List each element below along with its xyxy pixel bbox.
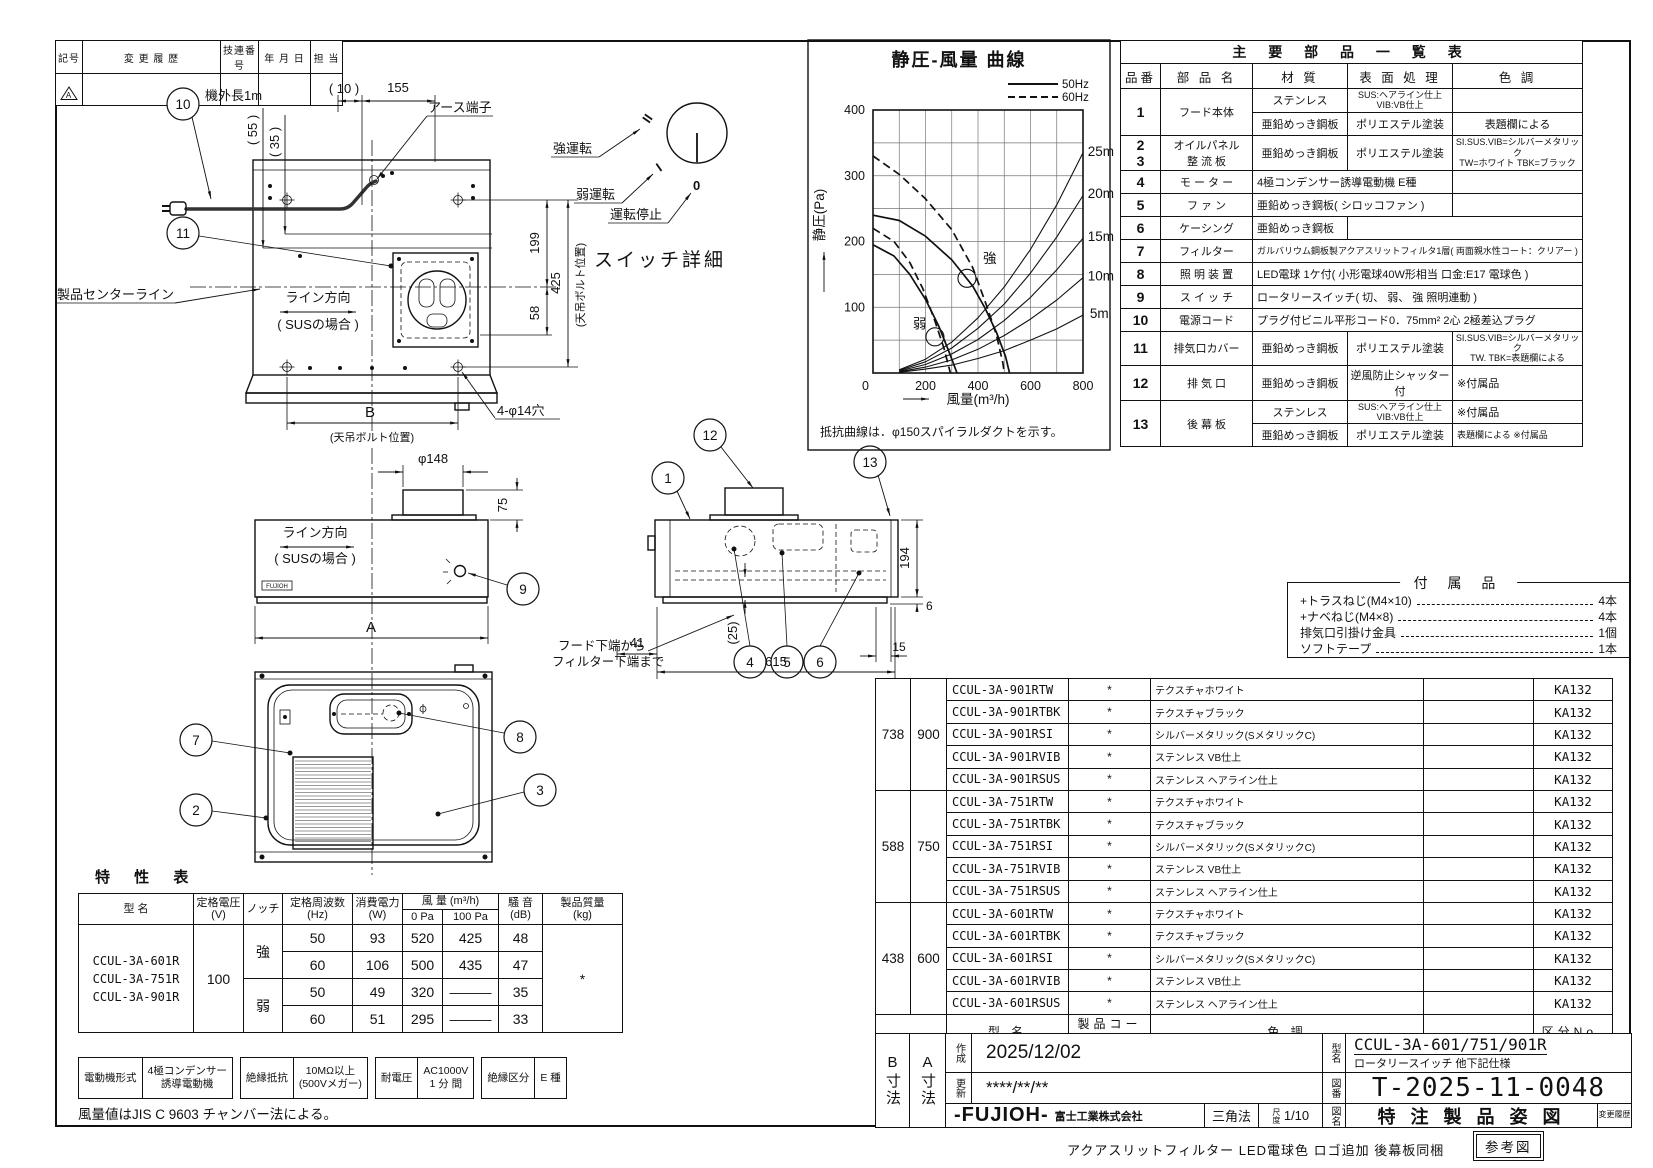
parts-table: 主 要 部 品 一 覧 表品番部 品 名材 質表 面 処 理色 調1フード本体ス… [1120, 40, 1583, 447]
motor-spec-cell: 電動機形式4極コンデンサー 誘導電動機 [78, 1057, 233, 1099]
cord-length-label: 機外長1m [205, 88, 262, 103]
color-tone: テクスチャホワイト [1151, 790, 1424, 812]
char-table-cell: 0 Pa [403, 909, 443, 925]
parts-table-cell: プラグ付ビニル平形コード0．75mm² 2心 2極差込プラグ [1253, 308, 1583, 331]
chart-ylabel: 静圧(Pa) [812, 189, 827, 242]
model-table-cell [1424, 746, 1534, 768]
kubun-no: KA132 [1534, 835, 1613, 857]
parts-table-cell: ポリエステル塗装 [1348, 424, 1453, 447]
characteristics-table: 型 名定格電圧 (V)ノッチ定格周波数 (Hz)消費電力 (W)風 量 (m³/… [78, 893, 623, 1033]
char-table-cell: 295 [403, 1006, 443, 1033]
strong-run-label: 強運転 [553, 141, 592, 156]
char-table-cell: 320 [403, 979, 443, 1006]
model-name: CCUL-3A-901RTW [947, 679, 1069, 701]
motor-spec-row: 電動機形式4極コンデンサー 誘導電動機絶縁抵抗10MΩ以上 (500Vメガー)耐… [78, 1057, 574, 1099]
parts-table-cell: 照 明 装 置 [1161, 262, 1253, 285]
y-tick: 300 [844, 169, 865, 183]
parts-table-cell: ステンレス [1253, 89, 1348, 113]
char-table-cell: 425 [443, 925, 499, 952]
chart-curve [899, 196, 1083, 371]
dim-label: A [366, 619, 376, 636]
model-cell: CCUL-3A-601/751/901R ロータリースイッチ 他下記仕様 [1345, 1033, 1632, 1073]
b-dimension: 588 [876, 790, 911, 902]
legend-60hz: 60Hz [1062, 92, 1089, 104]
parts-table-cell: ステンレス [1253, 400, 1348, 424]
chart-annotation: 25m [1088, 144, 1114, 159]
parts-table-cell: ケーシング [1161, 216, 1253, 239]
color-tone: テクスチャブラック [1151, 813, 1424, 835]
dim-label: 199 [527, 232, 542, 254]
airflow-note: 風量値はJIS C 9603 チャンバー法による。 [78, 1103, 337, 1123]
product-code: * [1069, 992, 1151, 1014]
kubun-no: KA132 [1534, 746, 1613, 768]
parts-table-cell: 電源コード [1161, 308, 1253, 331]
motor-spec-cell: 絶縁区分E 種 [481, 1057, 566, 1099]
parts-table-cell [1453, 193, 1583, 216]
parts-table-cell: 9 [1121, 285, 1161, 308]
model-table-cell [1424, 902, 1534, 924]
kubun-no: KA132 [1534, 723, 1613, 745]
balloon-8: 8 [516, 730, 524, 745]
rev-mini-cell: 変更履歴 [1597, 1103, 1632, 1128]
sus-note: ( SUSの場合 ) [274, 551, 356, 566]
parts-table-cell: 亜鉛めっき鋼板 [1253, 365, 1348, 400]
line-direction-label: ライン方向 [282, 525, 347, 540]
product-code: * [1069, 925, 1151, 947]
parts-table-cell: 13 [1121, 400, 1161, 447]
x-tick: 0 [862, 379, 869, 393]
company-logo-cell: -FUJIOH- 富士工業株式会社 [945, 1103, 1205, 1128]
char-table-cell: 48 [499, 925, 543, 952]
parts-table-cell: 4極コンデンサー誘導電動機 E種 [1253, 170, 1453, 193]
balloon-1: 1 [664, 471, 672, 486]
model-name: CCUL-3A-751RSUS [947, 880, 1069, 902]
parts-table-cell: オイルパネル 整 流 板 [1161, 135, 1253, 170]
dim-label: 75 [495, 498, 510, 512]
accessory-item: ソフトテープ1本 [1300, 641, 1617, 657]
char-table-cell: * [543, 925, 623, 1033]
legend-50hz: 50Hz [1062, 79, 1089, 91]
parts-table-cell: SI.SUS.VIB=シルバーメタリック TW=ホワイト TBK=ブラック [1453, 135, 1583, 170]
parts-table-cell: ポリエステル塗装 [1348, 331, 1453, 365]
parts-table-cell: 排 気 口 [1161, 365, 1253, 400]
parts-table-cell: フィルター [1161, 239, 1253, 262]
switch-mark-stop: 0 [693, 178, 700, 193]
parts-table-cell: 亜鉛めっき鋼板 [1253, 216, 1348, 239]
model-table-cell [1424, 947, 1534, 969]
model-label: 型名 [1322, 1033, 1346, 1073]
chart-annotation: 強 [983, 251, 997, 266]
product-code: * [1069, 858, 1151, 880]
model-table-cell [1424, 858, 1534, 880]
weak-run-label: 弱運転 [576, 187, 615, 202]
x-tick: 600 [1020, 379, 1041, 393]
char-table-cell: 50 [283, 925, 353, 952]
dim-label: (天吊ボルト位置) [330, 430, 414, 444]
char-table-cell: 製品質量 (kg) [543, 894, 623, 925]
char-table-cell: 定格電圧 (V) [194, 894, 244, 925]
kubun-no: KA132 [1534, 701, 1613, 723]
parts-table-cell: ロータリースイッチ( 切、 弱、 強 照明連動 ) [1253, 285, 1583, 308]
side-view-drawing: 12 1 13 4 5 6 41 615 (25) [552, 419, 933, 679]
char-table-cell: 強 [244, 925, 283, 979]
chart-curve [899, 278, 1083, 372]
duct-dia-label: φ148 [418, 451, 448, 466]
parts-table-cell [1348, 216, 1583, 239]
switch-mark-weak: I [653, 160, 665, 174]
x-tick: 200 [915, 379, 936, 393]
kubun-no: KA132 [1534, 813, 1613, 835]
model-table-cell [1424, 835, 1534, 857]
parts-table-cell: 亜鉛めっき鋼板 [1253, 331, 1348, 365]
parts-table-cell: ス イ ッ チ [1161, 285, 1253, 308]
model-name: CCUL-3A-601RSI [947, 947, 1069, 969]
line-direction-label: ライン方向 [285, 290, 350, 305]
product-code: * [1069, 701, 1151, 723]
dim-label: 15 [892, 640, 906, 654]
model-name: CCUL-3A-601RVIB [947, 970, 1069, 992]
created-date: 2025/12/02 [971, 1033, 1323, 1073]
parts-table-cell: 亜鉛めっき鋼板 [1253, 135, 1348, 170]
company-name: 富士工業株式会社 [1055, 1108, 1143, 1124]
motor-spec-cell: 絶縁抵抗10MΩ以上 (500Vメガー) [240, 1057, 368, 1099]
color-tone: ステンレス ヘアライン仕上 [1151, 880, 1424, 902]
char-table-cell: 435 [443, 952, 499, 979]
char-table-cell: 520 [403, 925, 443, 952]
kubun-no: KA132 [1534, 768, 1613, 790]
parts-table-cell: 表題欄による ※付属品 [1453, 424, 1583, 447]
char-table-cell: 100 [194, 925, 244, 1033]
parts-table-cell [1453, 170, 1583, 193]
kubun-no: KA132 [1534, 790, 1613, 812]
model-name: CCUL-3A-751RTBK [947, 813, 1069, 835]
product-code: * [1069, 679, 1151, 701]
char-table-cell: 49 [353, 979, 403, 1006]
model-table-cell [1424, 992, 1534, 1014]
parts-table-cell: 12 [1121, 365, 1161, 400]
motor-spec-cell: 耐電圧AC1000V 1 分 間 [375, 1057, 474, 1099]
parts-table-cell [1453, 89, 1583, 113]
accessory-item: +トラスねじ(M4×10)4本 [1300, 593, 1617, 609]
product-code: * [1069, 790, 1151, 812]
parts-table-cell: 6 [1121, 216, 1161, 239]
filter-note-line1: フード下端から [558, 639, 646, 653]
balloon-13: 13 [862, 455, 877, 470]
parts-table-cell: 7 [1121, 239, 1161, 262]
parts-table-cell: モ ー タ ー [1161, 170, 1253, 193]
product-code: * [1069, 947, 1151, 969]
projection-cell: 三角法 [1204, 1103, 1259, 1128]
engineering-drawing-page: 記号 変 更 履 歴 技連番号 年 月 日 担 当 A [0, 0, 1653, 1168]
scale-cell: 尺度 1/10 [1258, 1103, 1323, 1128]
color-tone: テクスチャホワイト [1151, 902, 1424, 924]
accessory-item: +ナベねじ(M4×8)4本 [1300, 609, 1617, 625]
parts-table-cell: 部 品 名 [1161, 64, 1253, 89]
chart-xlabel: 風量(m³/h) [947, 392, 1010, 407]
kubun-no: KA132 [1534, 947, 1613, 969]
parts-table-cell: ※付属品 [1453, 365, 1583, 400]
parts-table-cell: ガルバリウム鋼板製アクアスリットフィルタ1層( 両面親水性コート：クリアー ) [1253, 239, 1583, 262]
b-dim-header: B寸法 [875, 1033, 910, 1128]
kubun-no: KA132 [1534, 925, 1613, 947]
front-view-drawing: φ148 75 ライン方向 ( SUSの場合 ) FUJIOH 9 A [255, 451, 539, 644]
accessory-item: 排気口引掛け金具1個 [1300, 625, 1617, 641]
chart-title: 静圧-風量 曲線 [892, 49, 1027, 70]
char-table-cell: 騒 音 (dB) [499, 894, 543, 925]
kubun-no: KA132 [1534, 992, 1613, 1014]
parts-table-cell: 亜鉛めっき鋼板 [1253, 112, 1348, 135]
chart-annotation: 20m [1088, 186, 1114, 201]
balloon-12: 12 [702, 428, 717, 443]
a-dimension: 600 [911, 902, 947, 1014]
balloon-11: 11 [176, 226, 190, 241]
dwg-name-label: 図名 [1322, 1103, 1346, 1128]
dwg-name-value: 特 注 製 品 姿 図 [1345, 1103, 1598, 1128]
accessories-title: 付 属 品 [1400, 573, 1518, 593]
char-table-cell: 93 [353, 925, 403, 952]
model-name: CCUL-3A-901RSUS [947, 768, 1069, 790]
dim-label: ( 10 ) [329, 81, 359, 96]
color-tone: ステンレス VB仕上 [1151, 858, 1424, 880]
parts-table-cell: 2 3 [1121, 135, 1161, 170]
char-table-cell: 型 名 [79, 894, 194, 925]
switch-detail-caption: スイッチ詳細 [594, 249, 726, 271]
product-code: * [1069, 880, 1151, 902]
parts-table-cell: SUS:ヘアライン仕上 VIB:VB仕上 [1348, 400, 1453, 424]
dim-label: 155 [387, 80, 409, 95]
model-table-cell [1424, 723, 1534, 745]
model-table-cell [1424, 679, 1534, 701]
char-table-cell: CCUL-3A-601R CCUL-3A-751R CCUL-3A-901R [79, 925, 194, 1033]
char-table-cell: 消費電力 (W) [353, 894, 403, 925]
model-sub: ロータリースイッチ 他下記仕様 [1354, 1055, 1511, 1071]
balloon-6: 6 [816, 655, 824, 670]
char-table-cell: ——— [443, 979, 499, 1006]
model-name: CCUL-3A-601RTBK [947, 925, 1069, 947]
char-table-cell: 500 [403, 952, 443, 979]
balloon-2: 2 [192, 803, 200, 818]
dim-label: 615 [765, 654, 787, 669]
reference-stamp: 参考図 [1473, 1131, 1544, 1161]
stop-run-label: 運転停止 [610, 207, 662, 222]
char-table-cell: 50 [283, 979, 353, 1006]
parts-table-cell: 1 [1121, 89, 1161, 136]
bottom-note: アクアスリットフィルター LED電球色 ロゴ追加 後幕板同梱 [1067, 1140, 1444, 1159]
char-table-cell: ノッチ [244, 894, 283, 925]
updated-date: ****/**/** [971, 1072, 1323, 1104]
char-table-cell: 106 [353, 952, 403, 979]
parts-table-cell: 表題欄による [1453, 112, 1583, 135]
y-tick: 400 [844, 103, 865, 117]
chart-annotation: 10m [1088, 268, 1114, 283]
char-table-cell: ——— [443, 1006, 499, 1033]
switch-mark-strong: II [639, 111, 655, 126]
balloon-10: 10 [175, 97, 190, 112]
parts-table-cell: ポリエステル塗装 [1348, 135, 1453, 170]
color-tone: シルバーメタリック(SメタリックC) [1151, 835, 1424, 857]
title-block: B寸法 A寸法 作成 2025/12/02 更新 ****/**/** -FUJ… [875, 1033, 1632, 1128]
fujioh-logo: -FUJIOH- [954, 1104, 1049, 1127]
parts-table-cell: 材 質 [1253, 64, 1348, 89]
model-table: 738900CCUL-3A-901RTW*テクスチャホワイトKA132CCUL-… [875, 678, 1613, 1050]
a-dimension: 750 [911, 790, 947, 902]
model-name: CCUL-3A-751RTW [947, 790, 1069, 812]
char-table-cell: 定格周波数 (Hz) [283, 894, 353, 925]
dim-label: 6 [926, 599, 933, 613]
balloon-9: 9 [519, 582, 527, 597]
created-label: 作成 [945, 1033, 972, 1073]
balloon-7: 7 [192, 733, 200, 748]
model-name: CCUL-3A-901RTBK [947, 701, 1069, 723]
dim-label: B [365, 404, 375, 421]
balloon-3: 3 [536, 783, 544, 798]
sus-note: ( SUSの場合 ) [277, 317, 359, 332]
char-table-cell: 47 [499, 952, 543, 979]
kubun-no: KA132 [1534, 970, 1613, 992]
chart-annotation: 5m [1090, 306, 1109, 321]
x-tick: 400 [968, 379, 989, 393]
a-dim-header: A寸法 [909, 1033, 946, 1128]
chart-curve [873, 245, 957, 373]
model-table-cell [1424, 768, 1534, 790]
parts-table-cell: 亜鉛めっき鋼板( シロッコファン ) [1253, 193, 1453, 216]
centerline-label: 製品センターライン [57, 287, 174, 302]
reference-stamp-label: 参考図 [1476, 1134, 1541, 1158]
color-tone: ステンレス VB仕上 [1151, 746, 1424, 768]
char-table-cell: 60 [283, 1006, 353, 1033]
model-table-cell [1424, 880, 1534, 902]
pq-chart: 静圧-風量 曲線 50Hz 60Hz 静圧(Pa) 風量(m³/h) 抵抗曲線は… [808, 40, 1114, 450]
product-code: * [1069, 813, 1151, 835]
dim-label: ( 35 ) [267, 127, 282, 157]
dim-label: (25) [725, 621, 740, 644]
parts-table-cell: 表 面 処 理 [1348, 64, 1453, 89]
dim-label: 58 [527, 306, 542, 320]
back-view-drawing: ( 10 ) 155 ( 55 ) ( 35 ) 199 58 425 (天吊ボ… [57, 80, 587, 444]
color-tone: テクスチャブラック [1151, 701, 1424, 723]
parts-table-cell: 逆風防止シャッター付 [1348, 365, 1453, 400]
fujioh-mini-logo: FUJIOH [266, 584, 288, 590]
product-code: * [1069, 746, 1151, 768]
b-dimension: 438 [876, 902, 911, 1014]
model-name: CCUL-3A-901RVIB [947, 746, 1069, 768]
model-name: CCUL-3A-751RVIB [947, 858, 1069, 880]
parts-table-cell: 排気口カバー [1161, 331, 1253, 365]
char-table-cell: 33 [499, 1006, 543, 1033]
char-table-cell: 風 量 (m³/h) [403, 894, 499, 910]
parts-table-cell: SI.SUS.VIB=シルバーメタリック TW. TBK=表題欄による [1453, 331, 1583, 365]
parts-table-cell: 主 要 部 品 一 覧 表 [1121, 41, 1583, 64]
parts-table-cell: 5 [1121, 193, 1161, 216]
parts-table-cell: ポリエステル塗装 [1348, 112, 1453, 135]
color-tone: テクスチャブラック [1151, 925, 1424, 947]
char-table-cell: 弱 [244, 979, 283, 1033]
parts-table-cell: 色 調 [1453, 64, 1583, 89]
parts-table-cell: 亜鉛めっき鋼板 [1253, 424, 1348, 447]
chart-note: 抵抗曲線は．φ150スパイラルダクトを示す。 [820, 424, 1063, 439]
dim-label: 425 [548, 272, 563, 294]
kubun-no: KA132 [1534, 902, 1613, 924]
chart-annotation: 15m [1088, 229, 1114, 244]
kubun-no: KA132 [1534, 858, 1613, 880]
model-name: CCUL-3A-901RSI [947, 723, 1069, 745]
parts-table-cell: フ ァ ン [1161, 193, 1253, 216]
filter-note-line2: フィルター下端まで [552, 655, 664, 669]
model-name: CCUL-3A-601RSUS [947, 992, 1069, 1014]
model-name: CCUL-3A-601RTW [947, 902, 1069, 924]
color-tone: シルバーメタリック(SメタリックC) [1151, 723, 1424, 745]
product-code: * [1069, 768, 1151, 790]
char-table-cell: 51 [353, 1006, 403, 1033]
scale-label: 尺度 [1272, 1108, 1280, 1124]
parts-table-cell: 4 [1121, 170, 1161, 193]
b-dimension: 738 [876, 679, 911, 791]
model-table-cell [1424, 813, 1534, 835]
dim-label: ( 55 ) [245, 115, 260, 145]
model-table-cell [1424, 925, 1534, 947]
chart-curve [873, 228, 950, 373]
parts-table-cell: 8 [1121, 262, 1161, 285]
char-table-cell: 100 Pa [443, 909, 499, 925]
parts-table-cell: 11 [1121, 331, 1161, 365]
dim-label: (天吊ボルト位置) [573, 243, 587, 327]
parts-table-cell: 品番 [1121, 64, 1161, 89]
kubun-no: KA132 [1534, 679, 1613, 701]
earth-terminal-label: アース端子 [428, 100, 492, 115]
parts-table-cell: フード本体 [1161, 89, 1253, 136]
a-dimension: 900 [911, 679, 947, 791]
parts-table-cell: ※付属品 [1453, 400, 1583, 424]
model-value: CCUL-3A-601/751/901R [1354, 1035, 1547, 1055]
color-tone: ステンレス VB仕上 [1151, 970, 1424, 992]
x-tick: 800 [1073, 379, 1094, 393]
updated-label: 更新 [945, 1072, 972, 1104]
model-table-cell [1424, 790, 1534, 812]
model-table-cell [1424, 701, 1534, 723]
color-tone: テクスチャホワイト [1151, 679, 1424, 701]
scale-value: 1/10 [1284, 1108, 1309, 1123]
product-code: * [1069, 902, 1151, 924]
chart-annotation: 弱 [913, 316, 927, 331]
char-table-title: 特 性 表 [95, 866, 198, 887]
product-code: * [1069, 970, 1151, 992]
char-table-cell: 35 [499, 979, 543, 1006]
parts-table-cell: LED電球 1ケ付( 小形電球40W形相当 口金:E17 電球色 ) [1253, 262, 1583, 285]
balloon-4: 4 [746, 655, 754, 670]
dwgno-value: T-2025-11-0048 [1345, 1072, 1632, 1104]
parts-table-cell: 後 幕 板 [1161, 400, 1253, 447]
y-tick: 200 [844, 235, 865, 249]
parts-table-cell: 10 [1121, 308, 1161, 331]
char-table-cell: 60 [283, 952, 353, 979]
accessories-box: 付 属 品 +トラスねじ(M4×10)4本+ナベねじ(M4×8)4本排気口引掛け… [1287, 582, 1630, 658]
kubun-no: KA132 [1534, 880, 1613, 902]
product-code: * [1069, 835, 1151, 857]
product-code: * [1069, 723, 1151, 745]
color-tone: ステンレス ヘアライン仕上 [1151, 768, 1424, 790]
model-table-cell [1424, 970, 1534, 992]
parts-table-cell: SUS:ヘアライン仕上 VIB:VB仕上 [1348, 89, 1453, 113]
model-name: CCUL-3A-751RSI [947, 835, 1069, 857]
dim-label: 194 [897, 547, 912, 569]
color-tone: シルバーメタリック(SメタリックC) [1151, 947, 1424, 969]
dwgno-label: 図番 [1322, 1072, 1346, 1104]
holes-label: 4-φ14穴 [497, 403, 544, 418]
color-tone: ステンレス ヘアライン仕上 [1151, 992, 1424, 1014]
y-tick: 100 [844, 300, 865, 314]
